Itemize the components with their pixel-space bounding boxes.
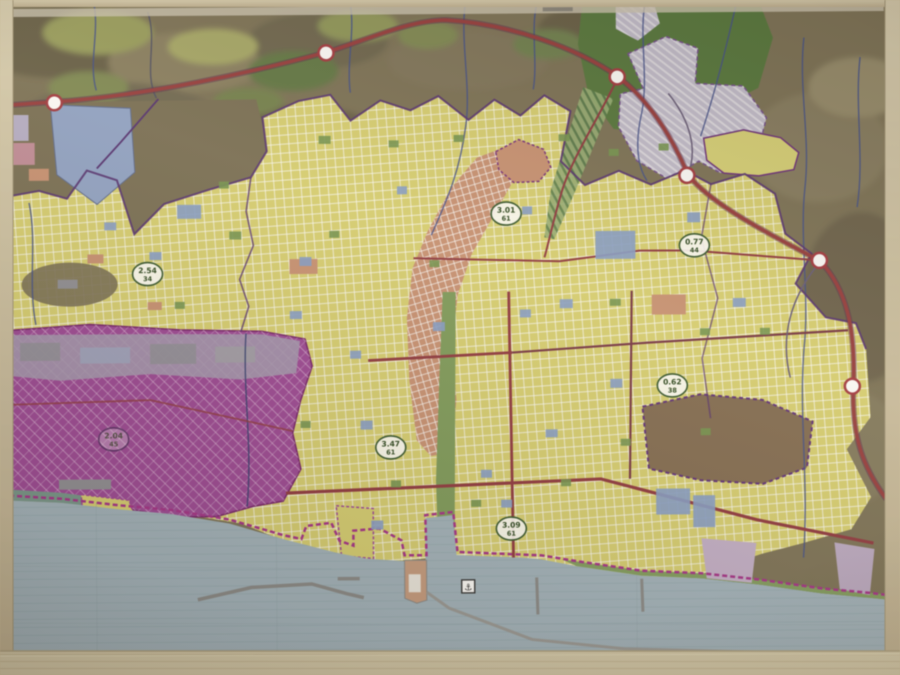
density-label: 3.01 61	[491, 202, 521, 225]
framed-map-photo: ⚓ 3.01 61 2.54 34 0.77 44 0.62 38	[0, 0, 900, 675]
svg-text:61: 61	[386, 448, 396, 456]
svg-text:38: 38	[668, 386, 678, 394]
density-label: 2.04 45	[99, 428, 129, 451]
svg-text:34: 34	[143, 275, 153, 283]
facility-block	[58, 280, 78, 289]
zoning-map: ⚓ 3.01 61 2.54 34 0.77 44 0.62 38	[0, 0, 900, 675]
density-label: 3.09 61	[496, 517, 526, 540]
density-label: 2.54 34	[132, 263, 162, 286]
svg-text:45: 45	[109, 440, 119, 448]
svg-text:3.01: 3.01	[497, 206, 516, 215]
anchor-icon: ⚓	[462, 580, 475, 594]
svg-text:44: 44	[690, 246, 700, 254]
density-label: 0.77 44	[679, 234, 709, 257]
svg-text:0.62: 0.62	[663, 377, 682, 386]
density-label: 0.62 38	[657, 374, 687, 397]
svg-text:61: 61	[507, 530, 517, 538]
svg-text:⚓: ⚓	[464, 583, 472, 593]
svg-text:3.09: 3.09	[502, 521, 521, 530]
density-label: 3.47 61	[376, 436, 406, 459]
svg-text:2.54: 2.54	[138, 266, 157, 275]
svg-text:0.77: 0.77	[685, 237, 704, 246]
svg-text:61: 61	[502, 215, 512, 223]
svg-text:3.47: 3.47	[381, 439, 400, 448]
margin-note-smudge	[543, 7, 573, 11]
wooden-shelf	[0, 651, 900, 675]
svg-text:2.04: 2.04	[104, 431, 123, 440]
